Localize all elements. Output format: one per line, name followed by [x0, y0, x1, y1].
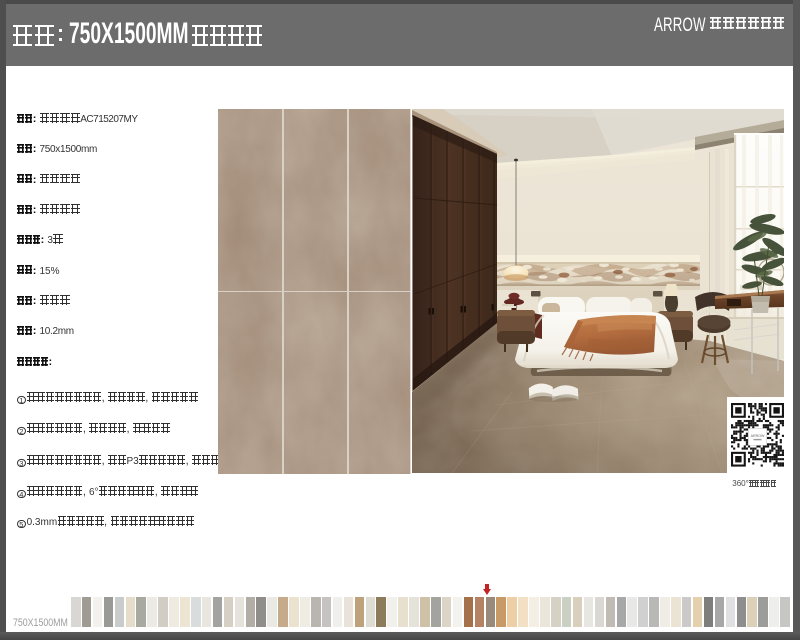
svg-text:ARROW: ARROW	[751, 434, 765, 438]
